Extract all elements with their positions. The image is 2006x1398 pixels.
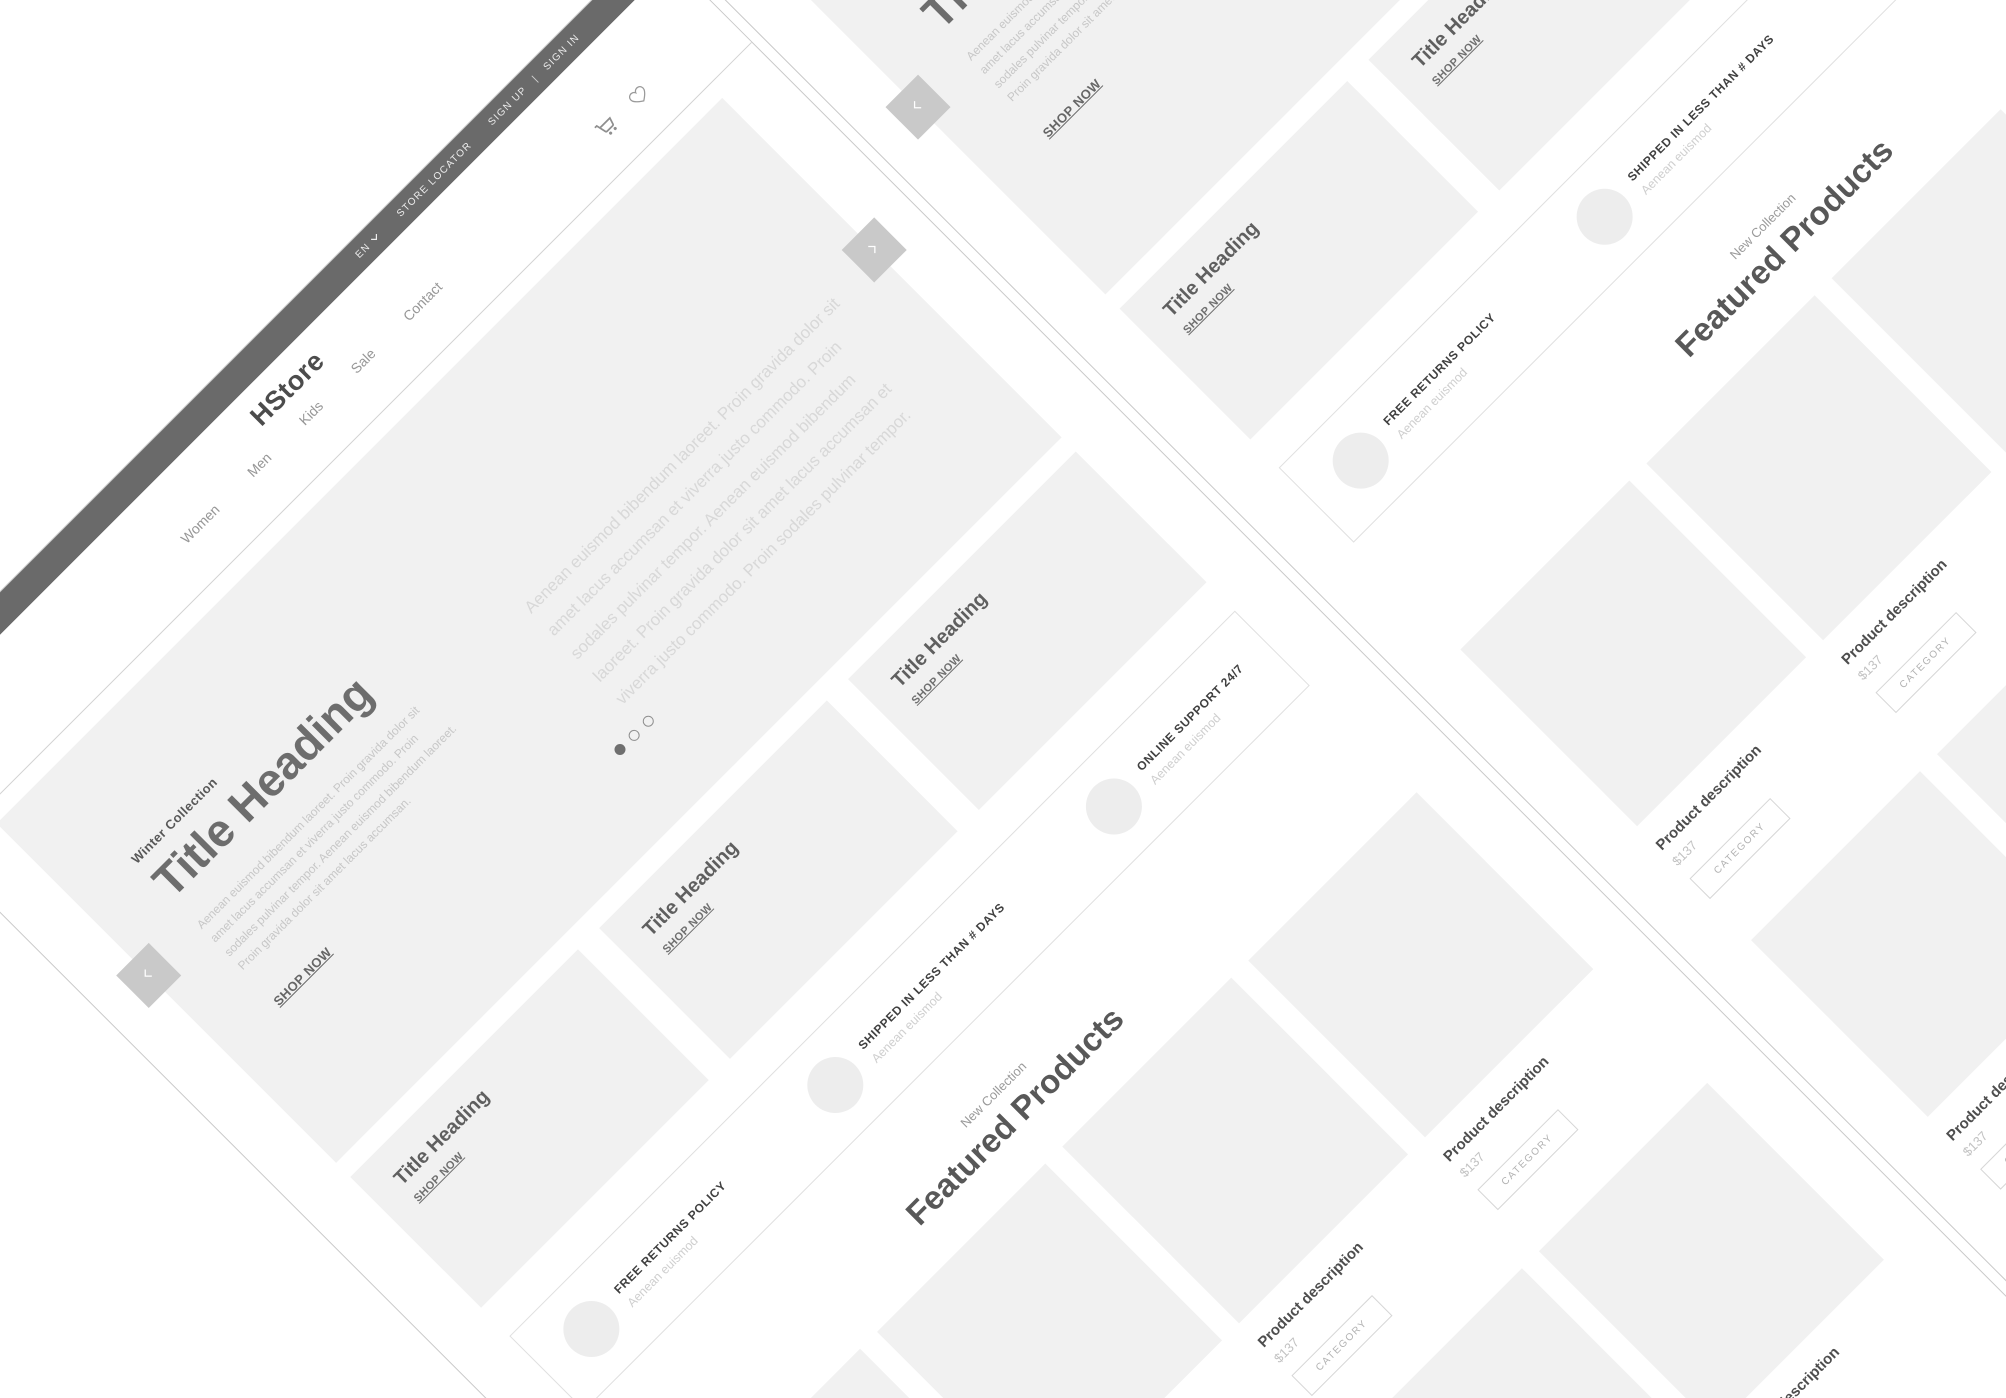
feature-subtitle: Aenean euismod [1394,323,1512,441]
carousel-dots [612,713,656,757]
feature-text: ONLINE SUPPORT 24/7 Aenean euismod [1134,661,1260,787]
feature-subtitle: Aenean euismod [1147,675,1259,787]
feature-subtitle: Aenean euismod [1638,45,1790,197]
tile-title: Title Heading [1408,0,1631,73]
feature-circle-icon [1321,421,1400,500]
carousel-dot[interactable] [612,742,628,758]
chevron-right-icon [863,238,886,261]
feature-text: FREE RETURNS POLICY Aenean euismod [611,1178,742,1309]
hero-text-block: Winter Collection Title Heading Aenean e… [128,623,515,1010]
feature-circle-icon [552,1289,631,1368]
feature-text: FREE RETURNS POLICY Aenean euismod [1380,310,1511,441]
feature-title: SHIPPED IN LESS THAN # DAYS [855,900,1007,1052]
feature-text: SHIPPED IN LESS THAN # DAYS Aenean euism… [1624,31,1790,197]
feature-title: SHIPPED IN LESS THAN # DAYS [1624,31,1776,183]
topbar-divider: | [530,73,541,84]
nav-item[interactable]: Kids [296,398,327,429]
hero-text-block: Winter Collection Title Heading Aenean e… [898,0,1285,141]
carousel-dot[interactable] [626,728,642,744]
feature-title: FREE RETURNS POLICY [1380,310,1498,428]
hero-shop-now-link[interactable]: SHOP NOW [270,944,334,1008]
hero-shop-now-link[interactable]: SHOP NOW [1039,76,1103,140]
hero-paragraph-small: Aenean euismod bibendum laoreet. Proin g… [962,0,1250,107]
feature-circle-icon [796,1045,875,1124]
carousel-next-button[interactable] [842,217,907,282]
carousel-prev-button[interactable] [116,943,181,1008]
product-image-placeholder[interactable] [1751,771,2006,1116]
nav-item[interactable]: Women [177,501,222,546]
nav-item[interactable]: Contact [400,279,445,324]
nav-item[interactable]: Sale [347,345,378,376]
nav-item[interactable]: Men [244,449,275,480]
chevron-left-icon [137,964,160,987]
feature-circle-icon [1074,767,1153,846]
feature-title: FREE RETURNS POLICY [611,1178,729,1296]
chevron-left-icon [906,95,929,118]
language-label: EN [353,241,372,260]
feature-title: ONLINE SUPPORT 24/7 [1134,661,1246,773]
feature-subtitle: Aenean euismod [868,913,1020,1065]
carousel-dot[interactable] [641,713,657,729]
chevron-down-icon [370,233,381,244]
feature-subtitle: Aenean euismod [624,1192,742,1310]
feature-circle-icon [1565,177,1644,256]
feature-text: SHIPPED IN LESS THAN # DAYS Aenean euism… [855,900,1021,1066]
canvas-viewport: EN STORE LOCATOR SIGN UP | SIGN IN HStor… [0,0,2006,1398]
carousel-prev-button[interactable] [886,75,951,140]
